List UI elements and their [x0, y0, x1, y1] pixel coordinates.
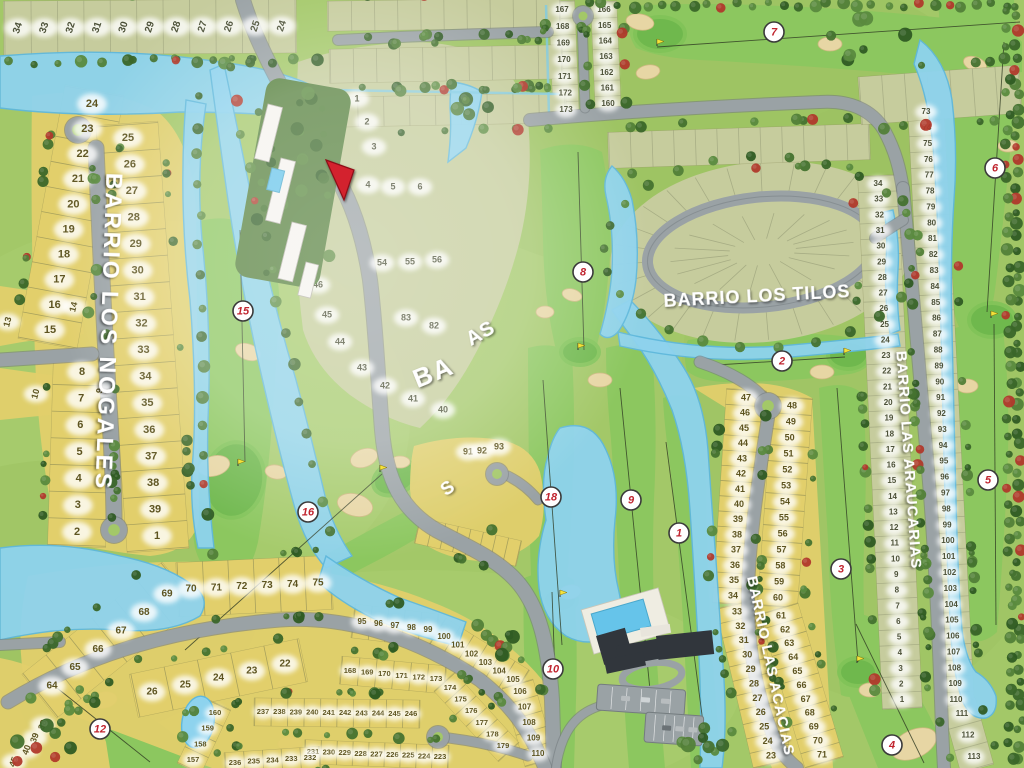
lot-number: 23	[766, 750, 776, 760]
svg-text:10: 10	[547, 663, 560, 675]
lot-number: 34	[874, 179, 883, 188]
lot-number: 225	[402, 751, 415, 760]
lot-number: 170	[378, 669, 391, 678]
lot-number: 88	[934, 345, 943, 354]
lot-number: 232	[304, 753, 317, 762]
lot-number: 61	[776, 610, 786, 620]
lot-number: 245	[388, 709, 401, 718]
lot-number: 106	[946, 632, 960, 641]
lot-number: 11	[890, 539, 899, 548]
lot-number: 105	[945, 616, 959, 625]
lot-number: 65	[69, 662, 81, 673]
lot-number: 90	[935, 377, 944, 386]
lot-number: 47	[741, 392, 751, 402]
lot-number: 50	[785, 432, 795, 442]
lot-number: 110	[950, 695, 963, 704]
lot-number: 163	[599, 52, 613, 61]
lot-number: 168	[344, 666, 357, 675]
lot-number: 12	[890, 523, 899, 532]
lot-number: 99	[943, 520, 952, 529]
lot-number: 69	[161, 589, 173, 600]
lot-number: 41	[735, 484, 745, 494]
lot-number: 36	[730, 560, 740, 570]
lot-number: 104	[944, 600, 958, 609]
lot-number: 87	[933, 330, 942, 339]
lot-number: 72	[236, 581, 248, 592]
lot-number: 23	[246, 666, 258, 677]
lot-number: 27	[752, 693, 762, 703]
lot-number: 4	[898, 648, 903, 657]
lot-number: 109	[949, 679, 963, 688]
golf-hole-marker-12[interactable]: 12	[90, 719, 110, 739]
lot-number: 238	[273, 707, 286, 716]
lot-number: 106	[513, 687, 527, 696]
lot-number: 171	[395, 671, 408, 680]
lot-number: 18	[885, 429, 894, 438]
lot-number: 70	[813, 735, 823, 745]
svg-text:18: 18	[545, 491, 558, 503]
lot-number: 73	[922, 107, 931, 116]
lot-number: 56	[778, 528, 788, 538]
lot-number: 39	[149, 503, 161, 515]
golf-hole-marker-4[interactable]: 4	[882, 735, 902, 755]
lot-number: 107	[947, 647, 961, 656]
lot-number: 15	[44, 324, 56, 336]
lot-number: 83	[930, 266, 939, 275]
lot-number: 16	[887, 461, 896, 470]
lot-number: 102	[465, 649, 479, 658]
lot-number: 80	[927, 218, 936, 227]
lot-number: 162	[600, 68, 614, 77]
lot-number: 239	[290, 707, 303, 716]
lot-number: 242	[339, 708, 352, 717]
lot-number: 86	[932, 314, 941, 323]
lot-number: 95	[358, 617, 367, 626]
lot-number: 169	[557, 38, 571, 47]
lot-number: 26	[756, 707, 766, 717]
golf-hole-marker-6[interactable]: 6	[985, 158, 1005, 178]
lot-number: 46	[740, 408, 750, 418]
svg-text:5: 5	[985, 474, 992, 486]
masterplan-map: 3433323130292827262524242322212019181716…	[0, 0, 1024, 768]
lot-number: 229	[338, 748, 351, 757]
lot-number: 7	[78, 393, 84, 405]
lot-number: 64	[46, 681, 58, 692]
lot-number: 63	[784, 638, 794, 648]
golf-hole-marker-2[interactable]: 2	[772, 351, 792, 371]
lot-number: 30	[742, 650, 752, 660]
svg-text:2: 2	[778, 355, 785, 367]
svg-text:12: 12	[94, 723, 106, 735]
lot-number: 65	[792, 666, 802, 676]
lot-number: 228	[354, 749, 367, 758]
lot-number: 91	[936, 393, 945, 402]
lot-number: 79	[926, 202, 935, 211]
golf-hole-marker-15[interactable]: 15	[233, 301, 253, 321]
lot-number: 172	[413, 672, 426, 681]
lot-number: 235	[247, 757, 260, 766]
lot-number: 73	[262, 580, 274, 591]
lot-number: 157	[187, 755, 200, 764]
lot-number: 226	[386, 750, 399, 759]
lot-number: 97	[941, 489, 950, 498]
lot-number: 25	[759, 722, 769, 732]
lot-number: 168	[556, 22, 570, 31]
lot-number: 158	[194, 739, 207, 748]
lot-number: 82	[929, 250, 938, 259]
svg-text:1: 1	[676, 527, 682, 539]
lot-number: 15	[887, 476, 896, 485]
lot-number: 179	[497, 741, 510, 750]
lot-number: 49	[786, 416, 796, 426]
lot-number: 107	[518, 703, 532, 712]
lot-number: 103	[479, 658, 493, 667]
lot-number: 236	[229, 758, 242, 767]
lot-number: 230	[323, 748, 336, 757]
lot-number: 55	[779, 512, 789, 522]
golf-hole-marker-16[interactable]: 16	[298, 502, 318, 522]
lot-number: 243	[355, 708, 368, 717]
golf-hole-marker-7[interactable]: 7	[764, 22, 784, 42]
lot-number: 27	[879, 289, 888, 298]
lot-number: 76	[924, 155, 933, 164]
lot-number: 233	[285, 754, 298, 763]
lot-number: 174	[444, 683, 457, 692]
lot-number: 8	[895, 586, 900, 595]
lot-number: 14	[888, 492, 897, 501]
lot-number: 167	[555, 5, 569, 14]
golf-hole-marker-9[interactable]: 9	[621, 490, 641, 510]
svg-text:9: 9	[628, 494, 635, 506]
lot-number: 244	[372, 709, 385, 718]
lot-number: 165	[598, 21, 612, 30]
lot-number: 67	[115, 625, 127, 636]
lot-number: 234	[266, 755, 279, 764]
lot-number: 64	[788, 652, 798, 662]
lot-number: 97	[391, 621, 400, 630]
lot-number: 100	[437, 632, 451, 641]
lot-number: 108	[948, 663, 962, 672]
lot-number: 2	[899, 679, 904, 688]
lot-number: 71	[817, 749, 827, 759]
svg-text:6: 6	[992, 162, 999, 174]
lot-number: 108	[522, 718, 536, 727]
lot-number: 96	[374, 619, 383, 628]
lot-number: 23	[882, 351, 891, 360]
lot-number: 1	[900, 695, 905, 704]
lot-number: 105	[506, 675, 520, 684]
svg-text:4: 4	[888, 739, 895, 751]
lot-number: 29	[746, 664, 756, 674]
svg-text:8: 8	[580, 266, 587, 278]
lot-number: 19	[884, 414, 893, 423]
lot-number: 93	[938, 425, 947, 434]
lot-number: 43	[737, 453, 747, 463]
lot-number: 104	[493, 667, 507, 676]
lot-number: 34	[728, 590, 738, 600]
lot-number: 112	[962, 731, 975, 740]
lot-number: 95	[939, 457, 948, 466]
golf-hole-marker-5[interactable]: 5	[978, 470, 998, 490]
lot-number: 224	[418, 751, 431, 760]
lot-number: 81	[928, 234, 937, 243]
lot-number: 13	[889, 507, 898, 516]
lot-number: 5	[76, 446, 82, 458]
lot-number: 33	[732, 606, 742, 616]
lot-number: 60	[773, 592, 783, 602]
lot-number: 178	[486, 729, 499, 738]
lot-number: 99	[424, 625, 433, 634]
lot-number: 37	[731, 545, 741, 555]
svg-text:3: 3	[838, 563, 844, 575]
lot-number: 68	[805, 708, 815, 718]
lot-number: 66	[92, 644, 104, 655]
lot-number: 223	[434, 752, 447, 761]
golf-hole-marker-10[interactable]: 10	[543, 659, 563, 679]
sand-bunker	[810, 365, 834, 379]
lot-number: 31	[876, 226, 885, 235]
lot-number: 1	[154, 530, 160, 542]
lot-number: 54	[780, 496, 790, 506]
lot-number: 24	[763, 736, 773, 746]
golf-hole-marker-1[interactable]: 1	[669, 523, 689, 543]
lot-number: 7	[895, 601, 900, 610]
lot-number: 21	[883, 382, 892, 391]
lot-number: 32	[735, 621, 745, 631]
lot-number: 237	[257, 707, 270, 716]
lot-number: 48	[787, 400, 797, 410]
lot-number: 2	[74, 526, 80, 538]
lot-number: 26	[146, 687, 158, 698]
lot-number: 75	[312, 578, 324, 589]
lot-number: 57	[776, 544, 786, 554]
lot-number: 101	[451, 641, 465, 650]
lot-number: 24	[213, 673, 225, 684]
svg-text:15: 15	[237, 305, 250, 317]
lot-number: 33	[874, 195, 883, 204]
lot-number: 3	[898, 664, 903, 673]
lot-number: 3	[75, 499, 81, 511]
lot-number: 68	[138, 607, 150, 618]
lot-number: 176	[465, 706, 478, 715]
lot-number: 92	[937, 409, 946, 418]
lot-number: 29	[877, 257, 886, 266]
lot-number: 42	[736, 469, 746, 479]
lot-number: 62	[780, 624, 790, 634]
lot-number: 101	[942, 552, 956, 561]
lot-number: 111	[956, 709, 969, 718]
lot-number: 22	[279, 659, 291, 670]
lot-number: 38	[732, 529, 742, 539]
svg-text:7: 7	[771, 26, 778, 38]
lot-number: 30	[876, 242, 885, 251]
lot-number: 70	[185, 584, 197, 595]
lot-number: 161	[601, 83, 615, 92]
lot-number: 17	[886, 445, 895, 454]
lot-number: 159	[201, 724, 214, 733]
lot-number: 6	[77, 419, 83, 431]
lot-number: 67	[801, 694, 811, 704]
lot-number: 20	[884, 398, 893, 407]
svg-text:16: 16	[302, 506, 315, 518]
lot-number: 71	[211, 582, 223, 593]
lot-number: 84	[930, 282, 939, 291]
golf-hole-marker-18[interactable]: 18	[541, 487, 561, 507]
lot-number: 39	[733, 514, 743, 524]
lot-number: 160	[209, 708, 222, 717]
lot-number: 28	[878, 273, 887, 282]
lot-number: 94	[939, 441, 948, 450]
lot-number: 75	[923, 139, 932, 148]
lot-number: 96	[940, 473, 949, 482]
lot-number: 78	[926, 187, 935, 196]
lot-number: 103	[944, 584, 958, 593]
lot-number: 98	[407, 623, 416, 632]
lot-number: 74	[287, 579, 299, 590]
lot-number: 51	[783, 448, 793, 458]
lot-number: 241	[323, 708, 336, 717]
lot-number: 24	[881, 335, 890, 344]
lot-number: 227	[370, 749, 383, 758]
lot-number: 77	[925, 171, 934, 180]
lot-number: 58	[775, 560, 785, 570]
golf-hole-marker-8[interactable]: 8	[573, 262, 593, 282]
lot-number: 98	[942, 504, 951, 513]
lot-number: 40	[734, 499, 744, 509]
lot-number: 28	[749, 678, 759, 688]
lot-number: 35	[729, 575, 739, 585]
lot-number: 110	[532, 749, 545, 758]
lot-number: 9	[894, 570, 899, 579]
lot-number: 100	[941, 536, 955, 545]
lot-number: 173	[430, 674, 443, 683]
lot-number: 4	[76, 473, 83, 485]
lot-number: 59	[774, 576, 784, 586]
lot-number: 25	[180, 680, 192, 691]
lot-number: 113	[968, 752, 981, 761]
lot-number: 5	[897, 633, 902, 642]
map-canvas: 3433323130292827262524242322212019181716…	[0, 0, 1024, 768]
lot-number: 175	[454, 695, 467, 704]
lot-number: 52	[782, 464, 792, 474]
lot-number: 31	[739, 635, 749, 645]
lot-number: 32	[875, 210, 884, 219]
lot-number: 10	[891, 554, 900, 563]
lot-number: 169	[361, 668, 374, 677]
lot-number: 66	[796, 680, 806, 690]
lot-number: 102	[943, 568, 957, 577]
lot-number: 109	[527, 734, 541, 743]
lot-number: 164	[599, 36, 613, 45]
lot-number: 177	[476, 718, 489, 727]
lot-number: 22	[882, 367, 891, 376]
lot-number: 69	[809, 722, 819, 732]
lot-number: 246	[405, 709, 418, 718]
lot-number: 85	[931, 298, 940, 307]
lot-number: 89	[935, 361, 944, 370]
lot-number: 44	[738, 438, 748, 448]
lot-number: 6	[896, 617, 901, 626]
lot-number: 240	[306, 708, 319, 717]
golf-hole-marker-3[interactable]: 3	[831, 559, 851, 579]
lot-number: 45	[739, 423, 749, 433]
lot-number: 53	[781, 480, 791, 490]
